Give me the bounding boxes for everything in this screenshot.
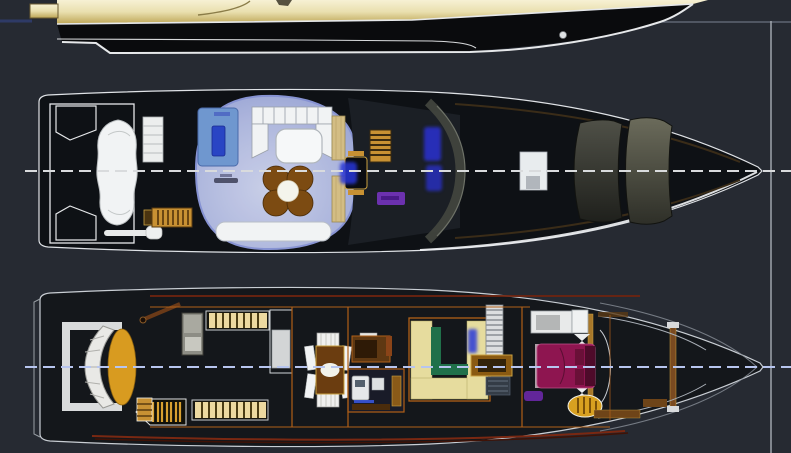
yacht-ga-drawing — [0, 0, 791, 453]
spa-label-mark — [214, 112, 230, 116]
aft-bench-bottom-slatted — [192, 400, 268, 420]
saloon-table — [276, 129, 322, 163]
aft-gray-locker — [182, 313, 203, 355]
cabin-shelf-3 — [598, 312, 628, 317]
staircase — [486, 305, 503, 357]
purple-console-mark — [377, 192, 405, 205]
clover-table — [263, 166, 313, 216]
helm-display-glow-2 — [426, 165, 442, 191]
stern-ladder-gold-small — [137, 398, 152, 421]
drawing-canvas — [0, 0, 791, 453]
profile-swim-platform — [30, 4, 58, 18]
dining-chair-bottom — [317, 394, 339, 407]
dining-table-centerpiece — [321, 363, 340, 377]
mid-vent-panel — [486, 377, 510, 395]
corridor-blue-glow — [468, 329, 477, 353]
tender — [97, 120, 137, 225]
corridor-green-trim-h — [431, 364, 468, 375]
aft-bench-top-slatted — [206, 311, 269, 330]
cabin-shelf-1 — [594, 410, 640, 418]
fore-windshield-panel-1 — [574, 120, 622, 222]
helm-display-glow-1 — [424, 127, 441, 161]
boarding-ladder-upper — [144, 208, 192, 227]
companionway-ladder-gold — [370, 130, 391, 162]
cabin-shelf-2 — [643, 399, 667, 407]
profile-porthole — [560, 32, 567, 39]
dining-chair-top — [317, 333, 339, 346]
helm-seat-glow — [340, 162, 357, 184]
mid-cabinet-brown — [471, 355, 512, 376]
cabin-purple-rug — [524, 391, 543, 401]
spa-tub — [198, 108, 238, 166]
sunpad-slats — [143, 117, 163, 162]
galley-lower — [348, 369, 404, 412]
aft-bench — [216, 222, 331, 241]
galley-upper — [352, 333, 392, 362]
